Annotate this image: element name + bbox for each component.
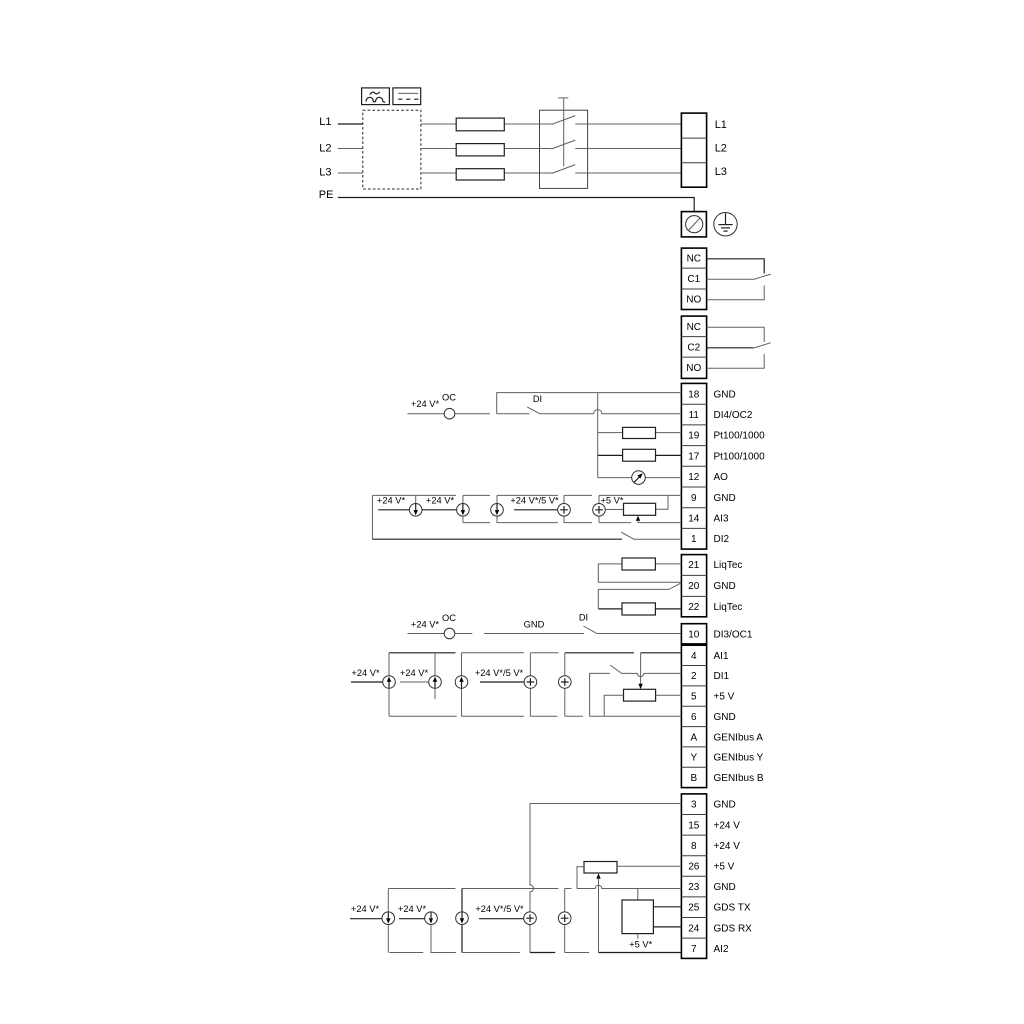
svg-text:+24 V*/5 V*: +24 V*/5 V* xyxy=(475,668,524,678)
svg-text:1: 1 xyxy=(691,534,697,545)
svg-text:8: 8 xyxy=(691,841,697,852)
svg-text:L2: L2 xyxy=(319,142,331,154)
svg-text:L1: L1 xyxy=(319,116,331,128)
svg-text:Pt100/1000: Pt100/1000 xyxy=(714,451,766,462)
svg-text:4: 4 xyxy=(691,651,697,662)
svg-text:DI1: DI1 xyxy=(714,671,730,682)
svg-text:L3: L3 xyxy=(319,167,331,179)
svg-text:+24 V*/5 V*: +24 V*/5 V* xyxy=(510,496,559,506)
svg-text:26: 26 xyxy=(688,862,700,873)
svg-text:+24 V*: +24 V* xyxy=(377,496,406,506)
svg-text:A: A xyxy=(690,732,697,743)
svg-text:23: 23 xyxy=(688,882,700,893)
svg-text:2: 2 xyxy=(691,671,697,682)
svg-text:AI1: AI1 xyxy=(714,651,729,662)
svg-text:10: 10 xyxy=(688,629,700,640)
svg-text:5: 5 xyxy=(691,692,697,703)
svg-text:Y: Y xyxy=(690,753,697,764)
svg-text:C2: C2 xyxy=(687,342,700,353)
svg-text:+24 V: +24 V xyxy=(714,820,741,831)
svg-text:+24 V*/5 V*: +24 V*/5 V* xyxy=(475,904,524,914)
svg-text:DI: DI xyxy=(533,394,542,404)
svg-text:19: 19 xyxy=(688,431,700,442)
svg-text:GND: GND xyxy=(714,800,736,811)
svg-text:6: 6 xyxy=(691,712,697,723)
svg-text:B: B xyxy=(690,773,697,784)
svg-text:+24 V*: +24 V* xyxy=(426,496,455,506)
svg-text:GENIbus B: GENIbus B xyxy=(714,773,764,784)
svg-text:NO: NO xyxy=(686,363,701,374)
svg-text:+5 V: +5 V xyxy=(714,692,735,703)
svg-text:NC: NC xyxy=(687,254,701,265)
svg-text:OC: OC xyxy=(442,393,456,403)
svg-text:GDS TX: GDS TX xyxy=(714,903,751,914)
svg-text:AI2: AI2 xyxy=(714,944,729,955)
svg-text:GND: GND xyxy=(524,620,545,630)
svg-text:AI3: AI3 xyxy=(714,514,729,525)
svg-text:+24 V*: +24 V* xyxy=(411,399,440,409)
svg-text:L1: L1 xyxy=(715,119,727,131)
svg-text:NO: NO xyxy=(686,295,701,306)
svg-text:17: 17 xyxy=(688,451,700,462)
svg-text:L2: L2 xyxy=(715,143,727,155)
svg-text:11: 11 xyxy=(689,410,700,421)
svg-text:7: 7 xyxy=(691,944,697,955)
svg-text:25: 25 xyxy=(688,903,700,914)
svg-text:GND: GND xyxy=(714,493,736,504)
svg-text:GND: GND xyxy=(714,581,736,592)
svg-text:+24 V*: +24 V* xyxy=(398,904,427,914)
svg-text:14: 14 xyxy=(688,514,700,525)
svg-text:L3: L3 xyxy=(715,166,727,178)
svg-text:LiqTec: LiqTec xyxy=(714,602,743,613)
svg-text:+5 V*: +5 V* xyxy=(600,496,623,506)
svg-text:+24 V*: +24 V* xyxy=(400,668,429,678)
svg-text:Pt100/1000: Pt100/1000 xyxy=(714,431,766,442)
svg-text:GENIbus Y: GENIbus Y xyxy=(714,753,764,764)
svg-text:+5 V*: +5 V* xyxy=(629,939,652,949)
svg-text:22: 22 xyxy=(688,602,700,613)
svg-text:18: 18 xyxy=(688,389,700,400)
svg-text:20: 20 xyxy=(688,581,700,592)
svg-text:GDS RX: GDS RX xyxy=(714,923,753,934)
svg-text:12: 12 xyxy=(688,472,700,483)
svg-text:DI: DI xyxy=(579,612,588,622)
svg-text:GND: GND xyxy=(714,389,736,400)
svg-text:+24 V*: +24 V* xyxy=(411,619,440,629)
svg-text:LiqTec: LiqTec xyxy=(714,560,743,571)
svg-text:+24 V*: +24 V* xyxy=(351,668,380,678)
svg-text:+24 V: +24 V xyxy=(714,841,741,852)
svg-text:C1: C1 xyxy=(687,274,700,285)
svg-text:GND: GND xyxy=(714,712,736,723)
svg-text:15: 15 xyxy=(688,820,700,831)
svg-text:24: 24 xyxy=(688,923,700,934)
svg-text:DI4/OC2: DI4/OC2 xyxy=(714,410,753,421)
svg-text:21: 21 xyxy=(688,560,700,571)
svg-text:DI2: DI2 xyxy=(714,534,730,545)
svg-text:+5 V: +5 V xyxy=(714,862,735,873)
svg-text:NC: NC xyxy=(687,322,701,333)
svg-text:+24 V*: +24 V* xyxy=(351,904,380,914)
svg-text:DI3/OC1: DI3/OC1 xyxy=(714,629,753,640)
svg-text:OC: OC xyxy=(442,613,456,623)
svg-text:3: 3 xyxy=(691,800,697,811)
svg-text:GND: GND xyxy=(714,882,736,893)
svg-text:PE: PE xyxy=(319,189,334,201)
svg-text:9: 9 xyxy=(691,493,697,504)
svg-text:GENIbus A: GENIbus A xyxy=(714,732,764,743)
svg-text:AO: AO xyxy=(714,472,729,483)
